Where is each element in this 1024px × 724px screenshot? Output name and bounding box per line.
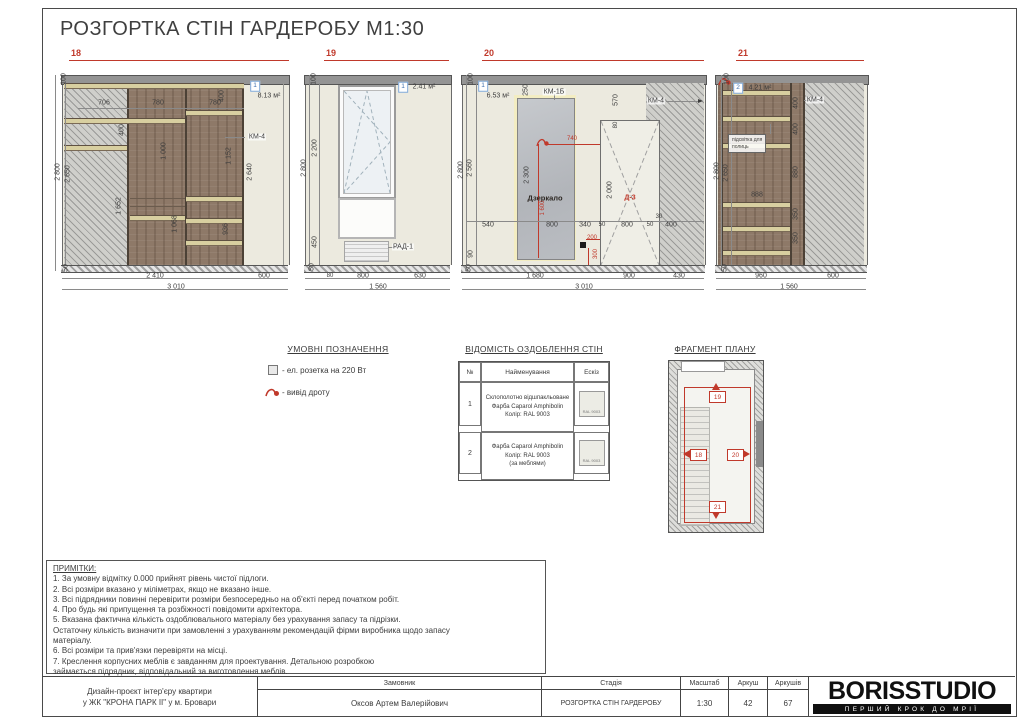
list-line: Колір: RAL 9003 (505, 452, 550, 461)
table-row-sketch: RAL 9003 (574, 432, 609, 474)
dim-label: 400 (219, 90, 226, 102)
dim-label: 250 (523, 84, 530, 96)
dim-label: 740 (567, 136, 577, 142)
list-line: (за меблями) (509, 460, 546, 469)
titleblock-scale-cell: Масштаб 1:30 (681, 677, 729, 716)
list-line: Колір: RAL 9003 (505, 411, 550, 420)
dim-label: 350 (793, 208, 800, 220)
dim-label: 350 (793, 232, 800, 244)
dim-label: 1 152 (226, 147, 233, 165)
notes-block: ПРИМІТКИ: 1. За умовну відмітку 0.000 пр… (46, 560, 546, 674)
dim-label: 706 (98, 100, 110, 107)
floor-band (461, 265, 705, 273)
dim-label: 1 652 (116, 197, 123, 215)
shelf (64, 145, 127, 151)
elevation-number: 19 (326, 48, 336, 58)
plan-fragment: 19 18 20 21 (668, 360, 764, 533)
list-line: 4. Про будь які припущення та розбіжност… (53, 605, 539, 615)
plan-wall-segment (756, 421, 763, 467)
list-line: Остаточну кількість визначити при замовл… (53, 626, 539, 636)
dim-label: 2 800 (714, 162, 721, 180)
elevation-rule (482, 60, 704, 61)
section-hatch (804, 83, 864, 265)
titleblock-customer-cell: Замовник Оксов Артем Валерійович (258, 677, 542, 716)
leader-arrow (698, 99, 703, 103)
dim-label: 4.21 м² (749, 85, 772, 92)
dim-label: 300 (593, 249, 599, 259)
legend: УМОВНІ ПОЗНАЧЕННЯ - ел. розетка на 220 В… (258, 344, 418, 398)
scale-label: Масштаб (681, 677, 728, 690)
customer-name: Оксов Артем Валерійович (258, 690, 541, 716)
leader-line (770, 124, 771, 134)
dim-label: 2 650 (723, 164, 730, 182)
dim-label: 400 (793, 123, 800, 135)
list-line: 3. Всі підрядники повинні перевірити роз… (53, 595, 539, 605)
red-dim-line (588, 248, 589, 265)
red-dim-line (545, 144, 600, 145)
wire-outlet-icon (536, 136, 552, 148)
scale-value: 1:30 (681, 690, 728, 716)
dim-label: 50 (466, 264, 473, 272)
window-opening-symbol (344, 91, 390, 193)
dim-label: 2 000 (607, 181, 614, 199)
dim-label: 3 010 (167, 284, 185, 291)
window (338, 85, 396, 199)
dim-line (309, 75, 310, 271)
finish-table-title: ВІДОМІСТЬ ОЗДОБЛЕННЯ СТІН (458, 344, 610, 354)
legend-item-label: - вивід дроту (282, 388, 330, 397)
dim-label: 400 (793, 97, 800, 109)
table-row-sketch: RAL 9003 (574, 382, 609, 426)
dim-label: 100 (468, 73, 475, 85)
col-header-no: № (459, 362, 481, 382)
dim-line (731, 83, 732, 265)
dim-line (319, 83, 320, 265)
dim-label: 100 (61, 73, 68, 85)
list-line: 6. Всі розміри та прив'язки перевіряти н… (53, 646, 539, 656)
drawer-front (186, 218, 242, 224)
legend-item-label: - ел. розетка на 220 Вт (282, 366, 366, 375)
dim-label: 50 (309, 263, 316, 271)
dim-label: 1 560 (369, 284, 387, 291)
dim-label: КМ-1Б (543, 89, 566, 96)
dim-label: 600 (258, 273, 270, 280)
shelf (723, 116, 790, 122)
finish-table: ВІДОМІСТЬ ОЗДОБЛЕННЯ СТІН № Найменування… (458, 344, 610, 481)
logo-wordmark: BORISSTUDIO (828, 679, 996, 704)
plan-window (681, 361, 725, 372)
shelf (723, 202, 790, 208)
elevation-number: 20 (484, 48, 494, 58)
finish-swatch: RAL 9003 (579, 440, 605, 466)
drawer-line (130, 206, 185, 207)
elevation-18: 18 1002 8002 650507067807804001 6521 000… (45, 48, 295, 310)
dim-label: Д-3 (624, 195, 635, 202)
dim-label: 430 (673, 273, 685, 280)
dim-label: 888 (751, 192, 763, 199)
dim-label: РАД-1 (392, 244, 414, 251)
titleblock-sheets-cell: Аркушів 67 (768, 677, 809, 716)
dim-label: 30 (656, 214, 663, 220)
dim-label: 570 (613, 94, 620, 106)
table-row-name: Склополотно відшпакльованеФарба Caparol … (481, 382, 574, 432)
dim-label: 540 (482, 222, 494, 229)
dim-label: 1 000 (161, 142, 168, 160)
dim-line (462, 278, 704, 279)
logo: BORISSTUDIO ПЕРШИЙ КРОК ДО МРІЇ (809, 677, 1015, 716)
dim-label: 2 (733, 83, 743, 94)
dim-label: 900 (623, 273, 635, 280)
finish-swatch: RAL 9003 (579, 391, 605, 417)
dim-line (62, 278, 288, 279)
stage-value: РОЗГОРТКА СТІН ГАРДЕРОБУ (542, 690, 680, 716)
dim-line (78, 108, 244, 109)
dim-label: 2 800 (458, 161, 465, 179)
dim-label: 200 (587, 235, 597, 241)
dim-label: 50 (722, 264, 729, 272)
dim-label: 780 (152, 100, 164, 107)
stage-label: Стадія (542, 677, 680, 690)
wire-outlet-icon (264, 386, 282, 398)
dim-label: 50 (599, 222, 606, 228)
sheet-label: Аркуш (729, 677, 767, 690)
title-block: Дизайн-проєкт інтер'єру квартири у ЖК "К… (42, 676, 1015, 716)
wardrobe-divider (803, 83, 805, 265)
dim-label: 2 200 (312, 139, 319, 157)
dim-label: 2 300 (524, 166, 531, 184)
floor-band (715, 265, 867, 273)
dim-label: 400 (665, 222, 677, 229)
dim-label: 2 800 (55, 163, 62, 181)
leader-line (225, 137, 245, 138)
plan-title: ФРАГМЕНТ ПЛАНУ (654, 344, 776, 354)
project-description: Дизайн-проєкт інтер'єру квартири у ЖК "К… (42, 677, 257, 716)
dim-label: 6.53 м² (487, 93, 510, 100)
titleblock-sheet-cell: Аркуш 42 (729, 677, 768, 716)
window-glass (343, 90, 391, 194)
titleblock-project-cell: Дизайн-проєкт інтер'єру квартири у ЖК "К… (42, 677, 258, 716)
dim-label: 80 (327, 273, 334, 279)
elevation-rule (69, 60, 289, 61)
dim-label: КМ-4 (806, 97, 824, 104)
dim-label: 800 (357, 273, 369, 280)
list-line: 7. Креслення корпусних меблів є завдання… (53, 657, 539, 667)
plan-arrow-down (712, 512, 720, 519)
dim-label: 1 068 (172, 215, 179, 233)
leader-line (666, 101, 698, 102)
customer-label: Замовник (258, 677, 541, 690)
wardrobe-divider (127, 83, 129, 265)
dim-label: 3 010 (575, 284, 593, 291)
list-line: Склополотно відшпакльоване (486, 394, 569, 403)
list-line: 5. Вказана фактична кількість оздоблювал… (53, 615, 539, 625)
dim-label: 100 (311, 73, 318, 85)
dim-line (476, 83, 477, 265)
plan-marker-19: 19 (709, 391, 726, 403)
dim-label: 2 410 (146, 273, 164, 280)
dim-label: 2 560 (467, 159, 474, 177)
wardrobe-divider (242, 83, 244, 265)
dim-label: 50 (647, 222, 654, 228)
floor-band (61, 265, 288, 273)
dim-label: 800 (546, 222, 558, 229)
list-line: Фарба Caparol Amphibolin (492, 403, 564, 412)
dim-label: 960 (755, 273, 767, 280)
elevation-21: 21 1002 8002 6505024.21 м²КМ-44004008803… (712, 48, 870, 310)
legend-title: УМОВНІ ПОЗНАЧЕННЯ (258, 344, 418, 354)
sheets-label: Аркушів (768, 677, 808, 690)
elevation-rule (736, 60, 864, 61)
radiator (344, 241, 389, 262)
drawer-front (186, 240, 242, 246)
plan-marker-18: 18 (690, 449, 707, 461)
table-row-no: 2 (459, 432, 481, 474)
plan-marker-20: 20 (727, 449, 744, 461)
dim-label: 2 800 (301, 159, 308, 177)
shelf (723, 226, 790, 232)
drawing-sheet: РОЗГОРТКА СТІН ГАРДЕРОБУ М1:30 18 1002 8… (0, 0, 1024, 724)
dim-label: 880 (793, 166, 800, 178)
elevation-19: 19 1002 8002 2004505012.41 м²РАД-1808006… (300, 48, 455, 310)
dim-label: 1 600 (540, 200, 546, 215)
col-header-name: Найменування (481, 362, 574, 382)
dim-label: 630 (414, 273, 426, 280)
elevation-20: 20 1002 8002 560905016.53 м²250КМ-1Б570К… (458, 48, 710, 310)
dim-label: 50 (63, 264, 70, 272)
elevation-number: 18 (71, 48, 81, 58)
dim-label: 1 560 (780, 284, 798, 291)
dim-label: 340 (579, 222, 591, 229)
dim-label: КМ-4 (647, 98, 665, 105)
sheet-value: 42 (729, 690, 767, 716)
sheets-value: 67 (768, 690, 808, 716)
dim-label: 2 640 (247, 163, 254, 181)
logo-tagline: ПЕРШИЙ КРОК ДО МРІЇ (813, 704, 1011, 714)
dim-label: 1 (250, 81, 260, 92)
wall-joint (283, 83, 284, 265)
notes-title: ПРИМІТКИ: (53, 564, 539, 574)
plan-arrow-left (683, 450, 690, 458)
dim-label: 100 (724, 73, 731, 85)
table-row-name: Фарба Caparol AmphibolinКолір: RAL 9003(… (481, 432, 574, 480)
page-title: РОЗГОРТКА СТІН ГАРДЕРОБУ М1:30 (60, 18, 424, 41)
legend-item-socket: - ел. розетка на 220 Вт (264, 365, 418, 375)
dim-label: 1 (478, 81, 488, 92)
dim-label: 450 (312, 236, 319, 248)
window-sill-panel (338, 198, 396, 239)
socket-icon (264, 365, 282, 375)
dim-label: 1 680 (526, 273, 544, 280)
dim-label: 90 (468, 250, 475, 258)
drawer-front (186, 196, 242, 202)
dim-label: КМ-4 (248, 134, 266, 141)
shelf (64, 83, 244, 89)
floor-band (304, 265, 450, 273)
dim-label: 2.41 м² (413, 84, 436, 91)
drawer-line (130, 198, 185, 199)
section-hatch (64, 83, 127, 265)
dim-line (716, 278, 866, 279)
dim-label: 2 650 (65, 165, 72, 183)
list-line: 1. За умовну відмітку 0.000 прийнят ріве… (53, 574, 539, 584)
list-line: Фарба Caparol Amphibolin (492, 443, 564, 452)
finish-table-grid: № Найменування Ескіз 1 Склополотно відшп… (458, 361, 610, 481)
dim-label: 80 (613, 122, 619, 129)
notes-lines: 1. За умовну відмітку 0.000 прийнят ріве… (53, 574, 539, 677)
dim-label: 936 (223, 223, 230, 235)
shelf (186, 110, 242, 116)
titleblock-stage-cell: Стадія РОЗГОРТКА СТІН ГАРДЕРОБУ (542, 677, 681, 716)
dim-label: 800 (621, 222, 633, 229)
dim-label: 1 (398, 82, 408, 93)
project-line1: Дизайн-проєкт інтер'єру квартири (83, 686, 216, 697)
dim-label: підсвітка для полиць (728, 134, 766, 153)
list-line: 2. Всі розміри вказано у міліметрах, якщ… (53, 585, 539, 595)
shelf (723, 250, 790, 256)
elevation-rule (324, 60, 449, 61)
plan-arrow-right (743, 450, 750, 458)
legend-item-wire: - вивід дроту (264, 386, 418, 398)
col-header-sketch: Ескіз (574, 362, 609, 382)
dim-label: 600 (827, 273, 839, 280)
elevation-number: 21 (738, 48, 748, 58)
dim-label: 400 (119, 124, 126, 136)
dim-label: 8.13 м² (258, 93, 281, 100)
plan-arrow-up (712, 383, 720, 390)
list-line: матеріалу. (53, 636, 539, 646)
socket (580, 242, 586, 248)
project-line2: у ЖК "КРОНА ПАРК ІІ" у м. Бровари (83, 697, 216, 708)
table-row-no: 1 (459, 382, 481, 426)
